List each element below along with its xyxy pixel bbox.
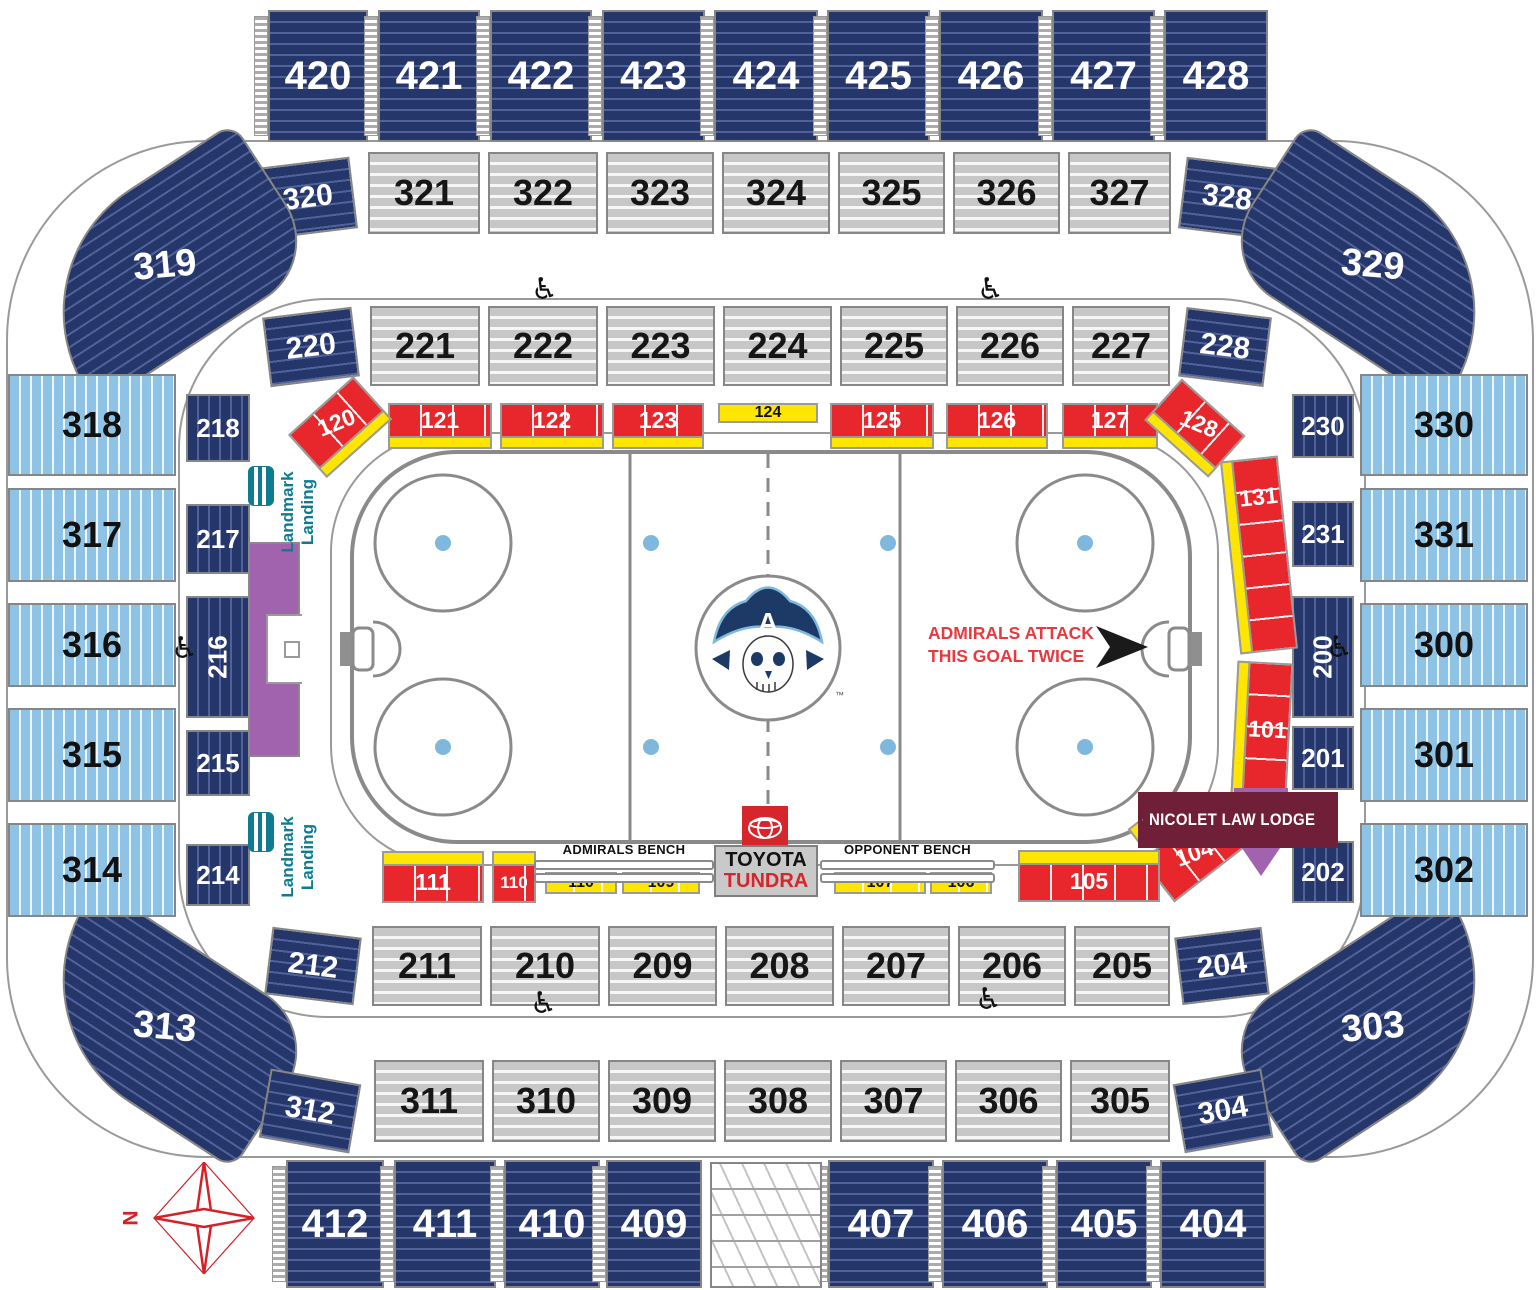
section-label: 127 xyxy=(1091,409,1129,432)
section-201[interactable]: 201 xyxy=(1292,726,1354,790)
section-label: 303 xyxy=(1340,1005,1406,1048)
section-label: 422 xyxy=(508,56,575,96)
section-211[interactable]: 211 xyxy=(372,926,482,1006)
wheelchair-icon: ♿ xyxy=(531,275,558,305)
wheelchair-icon: ♿ xyxy=(530,989,557,1019)
section-label: 409 xyxy=(621,1204,688,1244)
section-label: 204 xyxy=(1195,948,1248,984)
section-202[interactable]: 202 xyxy=(1292,841,1354,903)
section-label: 304 xyxy=(1196,1092,1251,1130)
section-label: 327 xyxy=(1089,175,1149,211)
section-218[interactable]: 218 xyxy=(186,394,250,462)
section-label: 217 xyxy=(196,526,239,552)
section-428[interactable]: 428 xyxy=(1164,10,1268,142)
section-110-box[interactable]: 110 xyxy=(492,851,536,903)
section-label: 328 xyxy=(1200,180,1253,216)
section-214[interactable]: 214 xyxy=(186,844,250,906)
section-325[interactable]: 325 xyxy=(838,152,945,234)
section-426[interactable]: 426 xyxy=(939,10,1043,142)
section-111[interactable]: 111 xyxy=(382,851,484,903)
section-label: 330 xyxy=(1414,407,1474,443)
section-label: 329 xyxy=(1340,243,1406,286)
section-label: 110 xyxy=(500,874,527,891)
section-label: 209 xyxy=(632,948,692,984)
section-223[interactable]: 223 xyxy=(606,306,715,386)
toyota-label: TOYOTA xyxy=(725,850,806,871)
section-217[interactable]: 217 xyxy=(186,504,250,574)
section-421[interactable]: 421 xyxy=(378,10,480,142)
section-label: 101 xyxy=(1248,717,1288,742)
section-205[interactable]: 205 xyxy=(1074,926,1170,1006)
section-label: 324 xyxy=(746,175,806,211)
section-label: 124 xyxy=(755,405,782,421)
section-321[interactable]: 321 xyxy=(368,152,480,234)
section-label: 307 xyxy=(863,1083,923,1119)
section-label: 214 xyxy=(196,862,239,888)
section-label: 231 xyxy=(1301,521,1344,547)
section-126[interactable]: 126 xyxy=(946,403,1048,449)
section-405[interactable]: 405 xyxy=(1056,1160,1152,1288)
section-label: 410 xyxy=(519,1204,586,1244)
section-label: 215 xyxy=(196,750,239,776)
section-323[interactable]: 323 xyxy=(606,152,714,234)
attack-line-1: ADMIRALS ATTACK xyxy=(928,622,1094,645)
section-302[interactable]: 302 xyxy=(1360,823,1528,917)
section-123[interactable]: 123 xyxy=(612,403,704,449)
bench-bar xyxy=(534,860,714,870)
landmark-word: Landmark xyxy=(278,452,298,572)
svg-text:A: A xyxy=(758,607,778,638)
section-404[interactable]: 404 xyxy=(1160,1160,1266,1288)
section-label: 421 xyxy=(396,56,463,96)
compass-north-label: N xyxy=(120,1210,144,1225)
section-409[interactable]: 409 xyxy=(606,1160,702,1288)
section-125[interactable]: 125 xyxy=(830,403,934,449)
section-label: 412 xyxy=(302,1204,369,1244)
section-label: 322 xyxy=(513,175,573,211)
section-124[interactable]: 124 xyxy=(718,403,818,423)
section-label: 201 xyxy=(1301,745,1344,771)
section-label: 314 xyxy=(62,852,122,888)
section-label: 111 xyxy=(415,871,451,894)
section-331[interactable]: 331 xyxy=(1360,488,1528,582)
section-label: 312 xyxy=(283,1092,338,1130)
section-label: 105 xyxy=(1070,870,1108,893)
section-label: 223 xyxy=(630,328,690,364)
section-230[interactable]: 230 xyxy=(1292,394,1354,458)
attack-arrow-icon xyxy=(1096,624,1148,670)
section-label: 300 xyxy=(1414,627,1474,663)
section-330[interactable]: 330 xyxy=(1360,374,1528,476)
section-324[interactable]: 324 xyxy=(722,152,830,234)
section-410[interactable]: 410 xyxy=(504,1160,600,1288)
section-101[interactable]: 101 xyxy=(1231,661,1294,798)
landmark-word: Landmark xyxy=(278,797,298,917)
section-label: 302 xyxy=(1414,852,1474,888)
section-label: 311 xyxy=(400,1083,458,1119)
section-label: 206 xyxy=(982,948,1042,984)
section-label: 317 xyxy=(62,517,122,553)
section-label: 228 xyxy=(1198,329,1251,365)
section-224[interactable]: 224 xyxy=(723,306,832,386)
section-301[interactable]: 301 xyxy=(1360,708,1528,802)
section-label: 202 xyxy=(1301,859,1344,885)
section-label: 205 xyxy=(1092,948,1152,984)
wheelchair-icon: ♿ xyxy=(1326,633,1353,663)
wheelchair-icon: ♿ xyxy=(977,275,1004,305)
section-label: 407 xyxy=(848,1204,915,1244)
section-label: 313 xyxy=(132,1005,198,1048)
bench-bar xyxy=(820,860,995,870)
section-label: 123 xyxy=(639,409,677,432)
section-label: 218 xyxy=(196,415,239,441)
trademark-mark: ™ xyxy=(835,690,844,700)
section-208[interactable]: 208 xyxy=(725,926,834,1006)
section-label: 221 xyxy=(395,328,455,364)
toyota-emblem-icon xyxy=(747,815,783,841)
landmark-landing-label: Landmark Landing xyxy=(278,797,322,917)
section-212[interactable]: 212 xyxy=(264,927,362,1005)
section-215[interactable]: 215 xyxy=(186,730,250,796)
section-label: 331 xyxy=(1414,517,1474,553)
section-label: 309 xyxy=(632,1083,692,1119)
bench-bar xyxy=(534,873,714,883)
section-label: 226 xyxy=(980,328,1040,364)
section-label: 212 xyxy=(286,948,339,984)
landmark-landing-label: Landmark Landing xyxy=(278,452,322,572)
section-label: 406 xyxy=(962,1204,1029,1244)
section-label: 323 xyxy=(630,175,690,211)
nicolet-law-lodge-label: NICOLET LAW LODGE xyxy=(1149,810,1315,830)
section-label: 306 xyxy=(978,1083,1038,1119)
section-307[interactable]: 307 xyxy=(840,1060,947,1142)
section-label: 315 xyxy=(62,737,122,773)
nicolet-law-lodge-banner[interactable]: NICOLET LAW LODGE xyxy=(1138,792,1338,848)
section-231[interactable]: 231 xyxy=(1292,501,1354,567)
section-227[interactable]: 227 xyxy=(1072,306,1170,386)
section-127[interactable]: 127 xyxy=(1062,403,1158,449)
section-label: 125 xyxy=(863,409,901,432)
section-316[interactable]: 316 xyxy=(8,603,176,687)
bearded-man-photo xyxy=(1142,796,1143,844)
section-label: 319 xyxy=(132,243,198,286)
section-226[interactable]: 226 xyxy=(956,306,1064,386)
landmark-landing-icon xyxy=(248,812,274,852)
section-204[interactable]: 204 xyxy=(1174,927,1270,1005)
section-label: 128 xyxy=(1177,406,1221,442)
section-318[interactable]: 318 xyxy=(8,374,176,476)
section-221[interactable]: 221 xyxy=(370,306,480,386)
section-314[interactable]: 314 xyxy=(8,823,176,917)
bench-bar xyxy=(820,873,995,883)
admirals-bench-label: ADMIRALS BENCH xyxy=(534,842,714,857)
section-420[interactable]: 420 xyxy=(268,10,368,142)
admirals-attack-note: ADMIRALS ATTACK THIS GOAL TWICE xyxy=(928,622,1094,668)
section-label: 225 xyxy=(864,328,924,364)
section-225[interactable]: 225 xyxy=(840,306,948,386)
tundra-label: TUNDRA xyxy=(724,871,808,892)
landing-word: Landing xyxy=(298,797,318,917)
section-322[interactable]: 322 xyxy=(488,152,598,234)
arena-seating-map: A ™ ADMIRALS ATTACK THIS GOAL TWICE ADMI… xyxy=(0,0,1536,1290)
section-308[interactable]: 308 xyxy=(724,1060,832,1142)
section-422[interactable]: 422 xyxy=(490,10,592,142)
section-label: 425 xyxy=(845,56,912,96)
section-310[interactable]: 310 xyxy=(492,1060,600,1142)
opponent-bench: OPPONENT BENCH xyxy=(820,842,995,883)
section-label: 325 xyxy=(861,175,921,211)
section-228[interactable]: 228 xyxy=(1178,307,1272,387)
section-label: 126 xyxy=(978,409,1016,432)
section-label: 423 xyxy=(620,56,687,96)
section-label: 420 xyxy=(285,56,352,96)
section-306[interactable]: 306 xyxy=(955,1060,1062,1142)
section-label: 321 xyxy=(394,175,454,211)
section-label: 308 xyxy=(748,1083,808,1119)
section-425[interactable]: 425 xyxy=(827,10,930,142)
section-300[interactable]: 300 xyxy=(1360,603,1528,687)
section-label: 427 xyxy=(1070,56,1137,96)
section-label: 224 xyxy=(747,328,807,364)
section-label: 411 xyxy=(413,1204,478,1244)
admirals-bench: ADMIRALS BENCH xyxy=(534,842,714,883)
section-label: 301 xyxy=(1414,737,1474,773)
stairs-block xyxy=(710,1162,822,1288)
section-label: 404 xyxy=(1180,1204,1247,1244)
section-311[interactable]: 311 xyxy=(374,1060,484,1142)
section-315[interactable]: 315 xyxy=(8,708,176,802)
section-label: 220 xyxy=(284,329,337,365)
section-label: 428 xyxy=(1183,56,1250,96)
landmark-landing-icon xyxy=(248,466,274,506)
section-121[interactable]: 121 xyxy=(388,403,492,449)
section-220[interactable]: 220 xyxy=(262,307,360,387)
section-412[interactable]: 412 xyxy=(286,1160,384,1288)
toyota-tundra-sign: TOYOTA TUNDRA xyxy=(714,845,818,897)
section-209[interactable]: 209 xyxy=(608,926,717,1006)
section-label: 208 xyxy=(749,948,809,984)
section-label: 405 xyxy=(1071,1204,1138,1244)
attack-line-2: THIS GOAL TWICE xyxy=(928,645,1094,668)
section-label: 222 xyxy=(513,328,573,364)
section-407[interactable]: 407 xyxy=(828,1160,934,1288)
opponent-bench-label: OPPONENT BENCH xyxy=(820,842,995,857)
section-122[interactable]: 122 xyxy=(500,403,604,449)
section-label: 316 xyxy=(62,627,122,663)
section-label: 120 xyxy=(314,405,358,441)
section-label: 318 xyxy=(62,407,122,443)
compass-icon xyxy=(150,1162,258,1274)
wheelchair-icon: ♿ xyxy=(975,985,1002,1015)
section-424[interactable]: 424 xyxy=(714,10,818,142)
section-427[interactable]: 427 xyxy=(1052,10,1155,142)
section-423[interactable]: 423 xyxy=(602,10,705,142)
section-309[interactable]: 309 xyxy=(608,1060,716,1142)
section-305[interactable]: 305 xyxy=(1070,1060,1170,1142)
section-label: 305 xyxy=(1090,1083,1150,1119)
section-label: 424 xyxy=(733,56,800,96)
section-label: 230 xyxy=(1301,413,1344,439)
section-label: 310 xyxy=(516,1083,576,1119)
wheelchair-icon: ♿ xyxy=(171,634,198,664)
section-label: 211 xyxy=(398,948,456,984)
section-label: 131 xyxy=(1238,484,1279,511)
section-label: 216 xyxy=(205,635,231,678)
section-label: 210 xyxy=(515,948,575,984)
section-label: 121 xyxy=(421,409,459,432)
section-label: 207 xyxy=(866,948,926,984)
purple-left-box xyxy=(284,641,300,658)
toyota-ice-logo xyxy=(742,806,788,850)
landing-word: Landing xyxy=(298,452,318,572)
section-label: 227 xyxy=(1091,328,1151,364)
section-label: 426 xyxy=(958,56,1025,96)
section-label: 326 xyxy=(976,175,1036,211)
section-411[interactable]: 411 xyxy=(394,1160,496,1288)
section-327[interactable]: 327 xyxy=(1068,152,1171,234)
section-label: 122 xyxy=(533,409,571,432)
section-105[interactable]: 105 xyxy=(1018,850,1160,902)
section-207[interactable]: 207 xyxy=(842,926,950,1006)
section-317[interactable]: 317 xyxy=(8,488,176,582)
section-326[interactable]: 326 xyxy=(953,152,1060,234)
section-406[interactable]: 406 xyxy=(942,1160,1048,1288)
section-222[interactable]: 222 xyxy=(488,306,598,386)
